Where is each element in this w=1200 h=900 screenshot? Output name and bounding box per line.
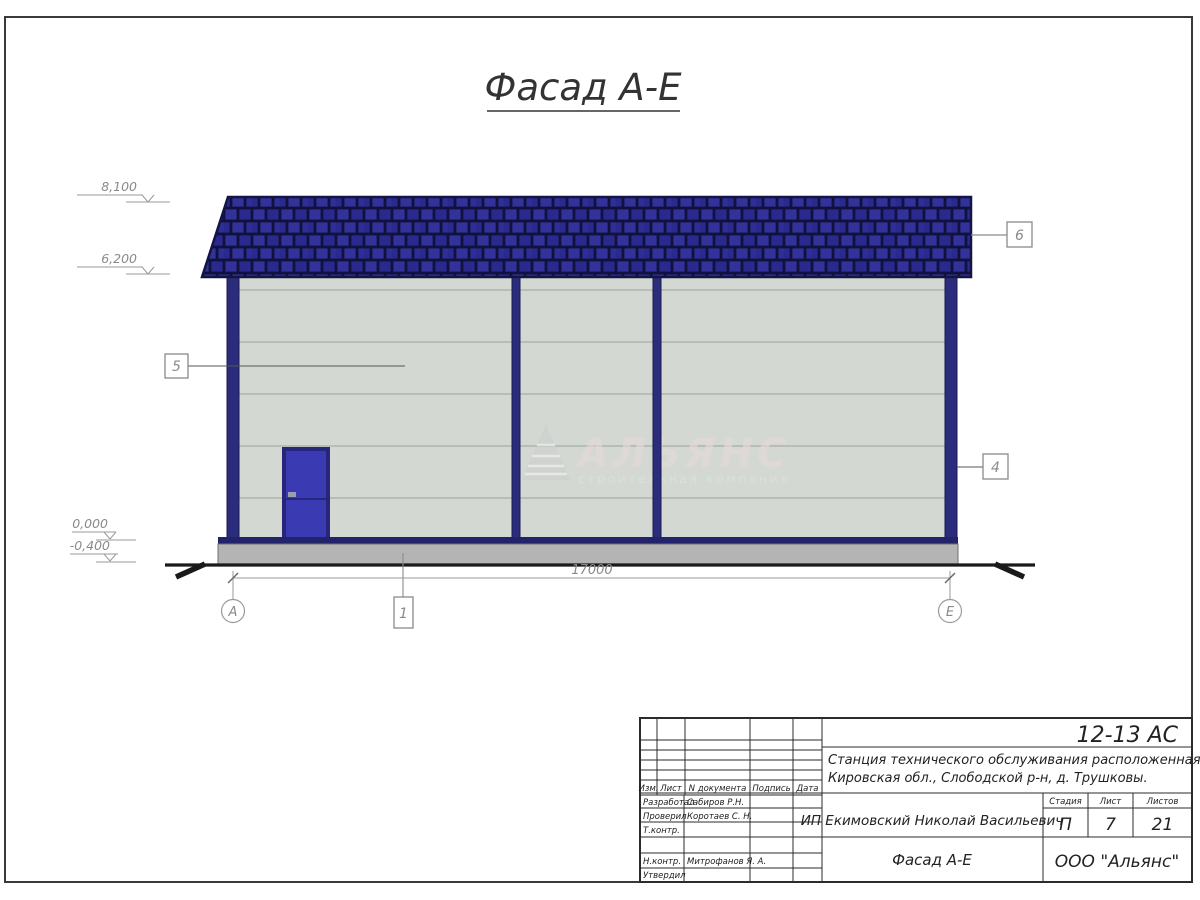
- name-checker: Коротаев С. Н.: [687, 812, 752, 822]
- project-line2: Кировская обл., Слободской р-н, д. Трушк…: [828, 771, 1148, 786]
- col-list: Лист: [659, 784, 683, 794]
- callout-number: 5: [172, 359, 181, 375]
- elevation-value: 8,100: [101, 179, 137, 194]
- elevation-mark-8100: 8,100: [77, 179, 170, 202]
- elevation-value: 0,000: [72, 516, 108, 531]
- building-elevation: АЛЬЯНС строительная компания: [165, 197, 1035, 577]
- elevation-value: -0,400: [70, 538, 110, 553]
- plinth: [218, 544, 958, 564]
- name-developer: Сабиров Р.Н.: [687, 798, 744, 808]
- drawing-sheet: Фасад А-Е АЛЬЯНС строительная компания: [0, 0, 1200, 900]
- callout-number: 4: [991, 460, 1000, 476]
- door: [282, 447, 330, 540]
- elevation-marks: 8,100 6,200 0,000: [70, 179, 170, 562]
- project-line1: Станция технического обслуживания распол…: [828, 753, 1200, 768]
- role-tcontrol: Т.контр.: [643, 826, 680, 836]
- company-name: ООО "Альянс": [1055, 852, 1179, 872]
- col-doc: N документа: [689, 784, 747, 794]
- callout-6: 6: [971, 222, 1032, 247]
- sheet-value: 7: [1105, 815, 1116, 835]
- stage-header: Стадия: [1049, 797, 1082, 807]
- col-date: Дата: [795, 784, 818, 794]
- sheet-header: Лист: [1099, 797, 1123, 807]
- title-block: 12-13 АС Станция технического обслуживан…: [639, 718, 1200, 882]
- role-approver: Утвердил: [643, 871, 686, 881]
- sheets-value: 21: [1152, 815, 1174, 835]
- axis-letter: А: [228, 605, 238, 620]
- name-ncontrol: Митрофанов Я. А.: [687, 857, 766, 867]
- sheets-header: Листов: [1146, 797, 1179, 807]
- wall: [228, 277, 957, 540]
- base-band: [218, 537, 958, 544]
- client-name: ИП Екимовский Николай Васильевич: [801, 813, 1063, 829]
- axis-marker-a: А: [222, 600, 245, 623]
- stage-value: П: [1059, 815, 1072, 835]
- dimension-line: 17000: [228, 563, 955, 599]
- callout-number: 6: [1015, 228, 1024, 244]
- roof-shingles: [202, 197, 971, 277]
- column-left: [227, 277, 239, 540]
- axis-markers: А Е: [222, 600, 962, 623]
- col-sign: Подпись: [752, 784, 790, 794]
- axis-letter: Е: [946, 605, 955, 620]
- elevation-mark-minus0400: -0,400: [70, 538, 136, 562]
- callout-number: 1: [399, 606, 408, 622]
- column-mid-1: [512, 277, 520, 540]
- elevation-value: 6,200: [101, 251, 137, 266]
- dimension-value: 17000: [571, 563, 612, 578]
- sheet-title: Фасад А-Е: [892, 851, 972, 869]
- doc-number: 12-13 АС: [1077, 723, 1179, 748]
- col-izm: Изм.: [639, 784, 659, 794]
- callout-4: 4: [957, 454, 1008, 479]
- column-mid-2: [653, 277, 661, 540]
- watermark-subtitle: строительная компания: [578, 471, 790, 486]
- column-right: [945, 277, 957, 540]
- axis-marker-e: Е: [939, 600, 962, 623]
- elevation-mark-0000: 0,000: [72, 516, 136, 540]
- role-checker: Проверил: [643, 812, 687, 822]
- page-title: Фасад А-Е: [485, 66, 683, 109]
- elevation-mark-6200: 6,200: [77, 251, 170, 274]
- roof: [202, 197, 971, 277]
- role-ncontrol: Н.контр.: [643, 857, 681, 867]
- door-handle: [288, 492, 296, 497]
